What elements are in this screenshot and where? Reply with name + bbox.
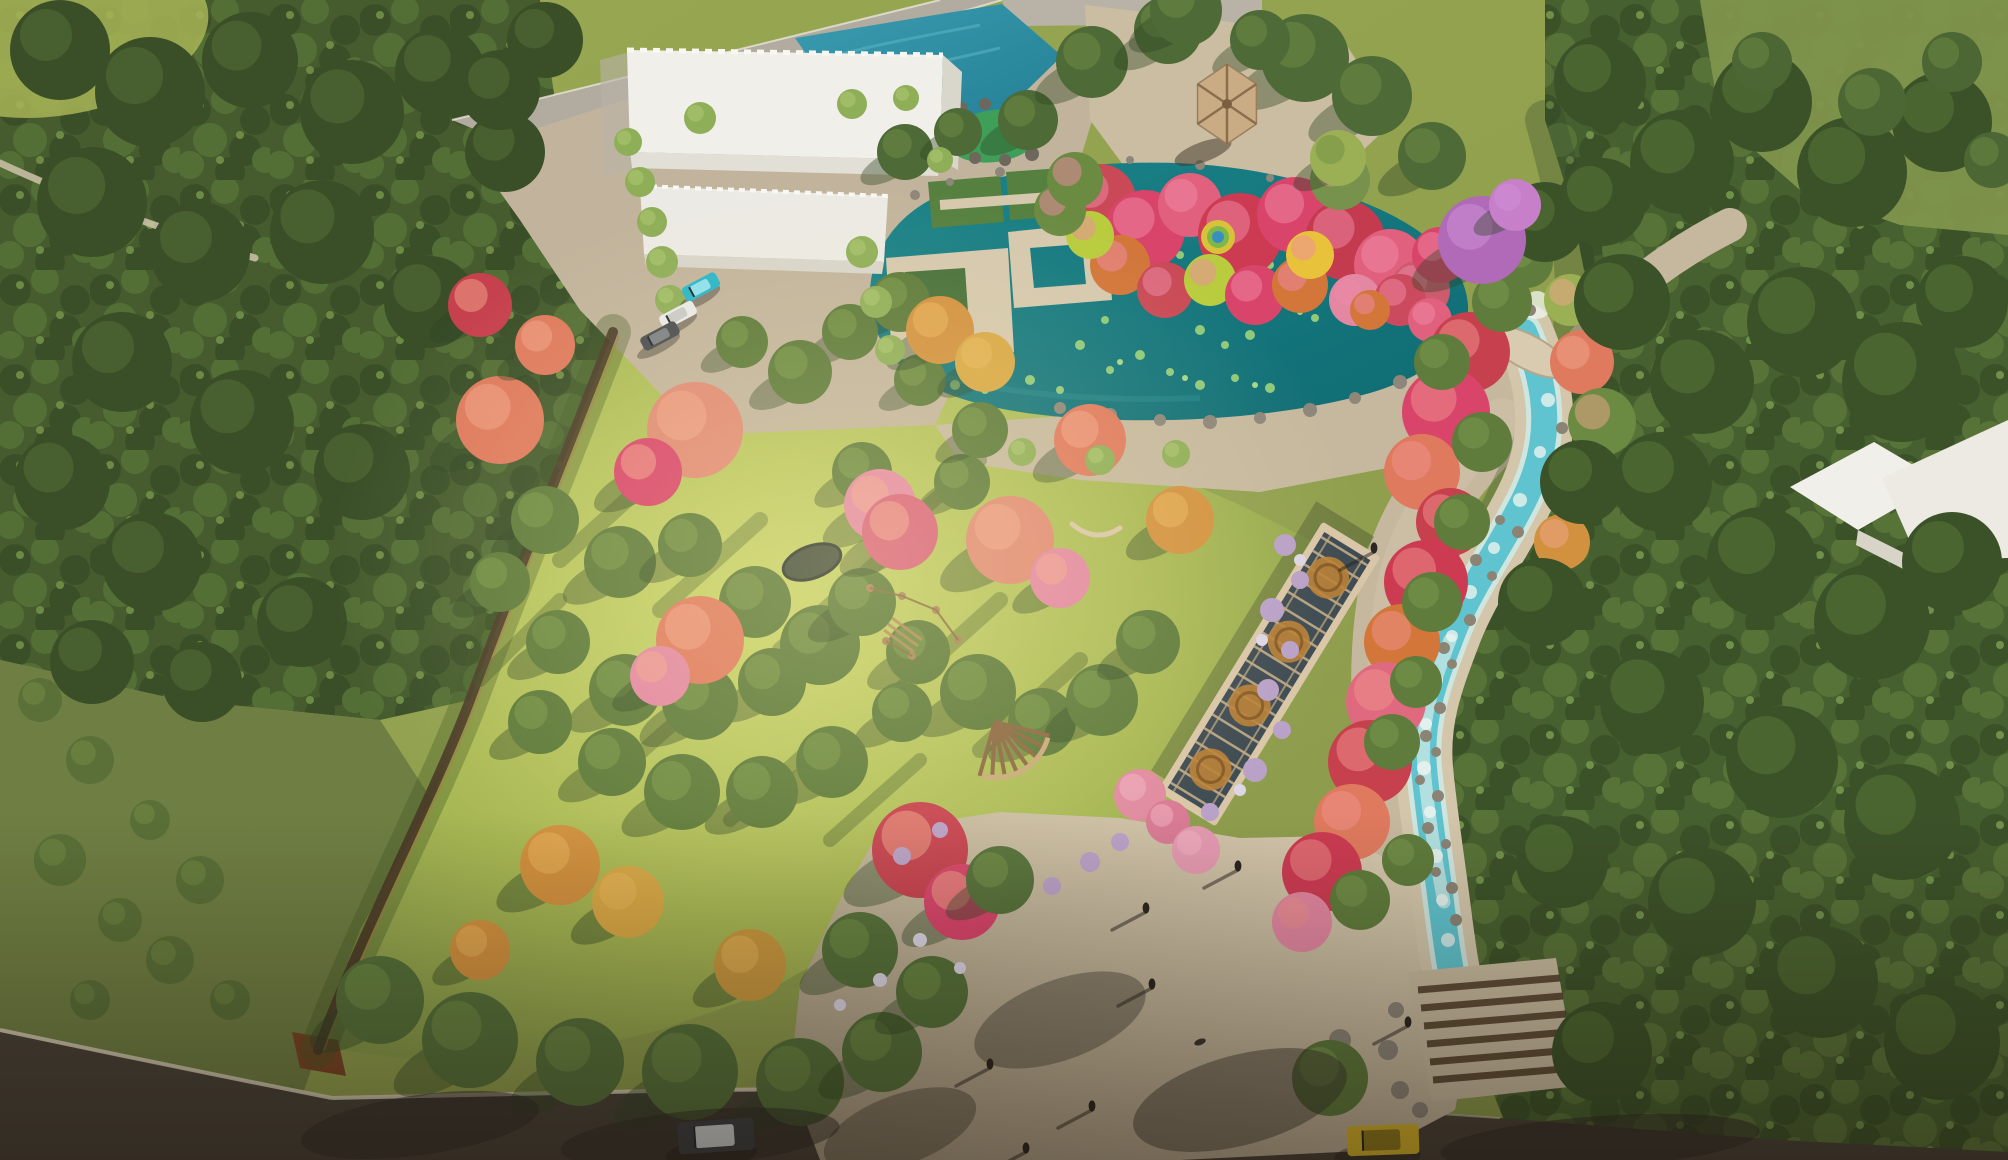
scene-root [0,0,2008,1160]
park-aerial-rendering [0,0,2008,1160]
vignette-layer [0,0,2008,1160]
vignette [0,0,2008,1160]
park-scene-canvas [0,0,2008,1160]
